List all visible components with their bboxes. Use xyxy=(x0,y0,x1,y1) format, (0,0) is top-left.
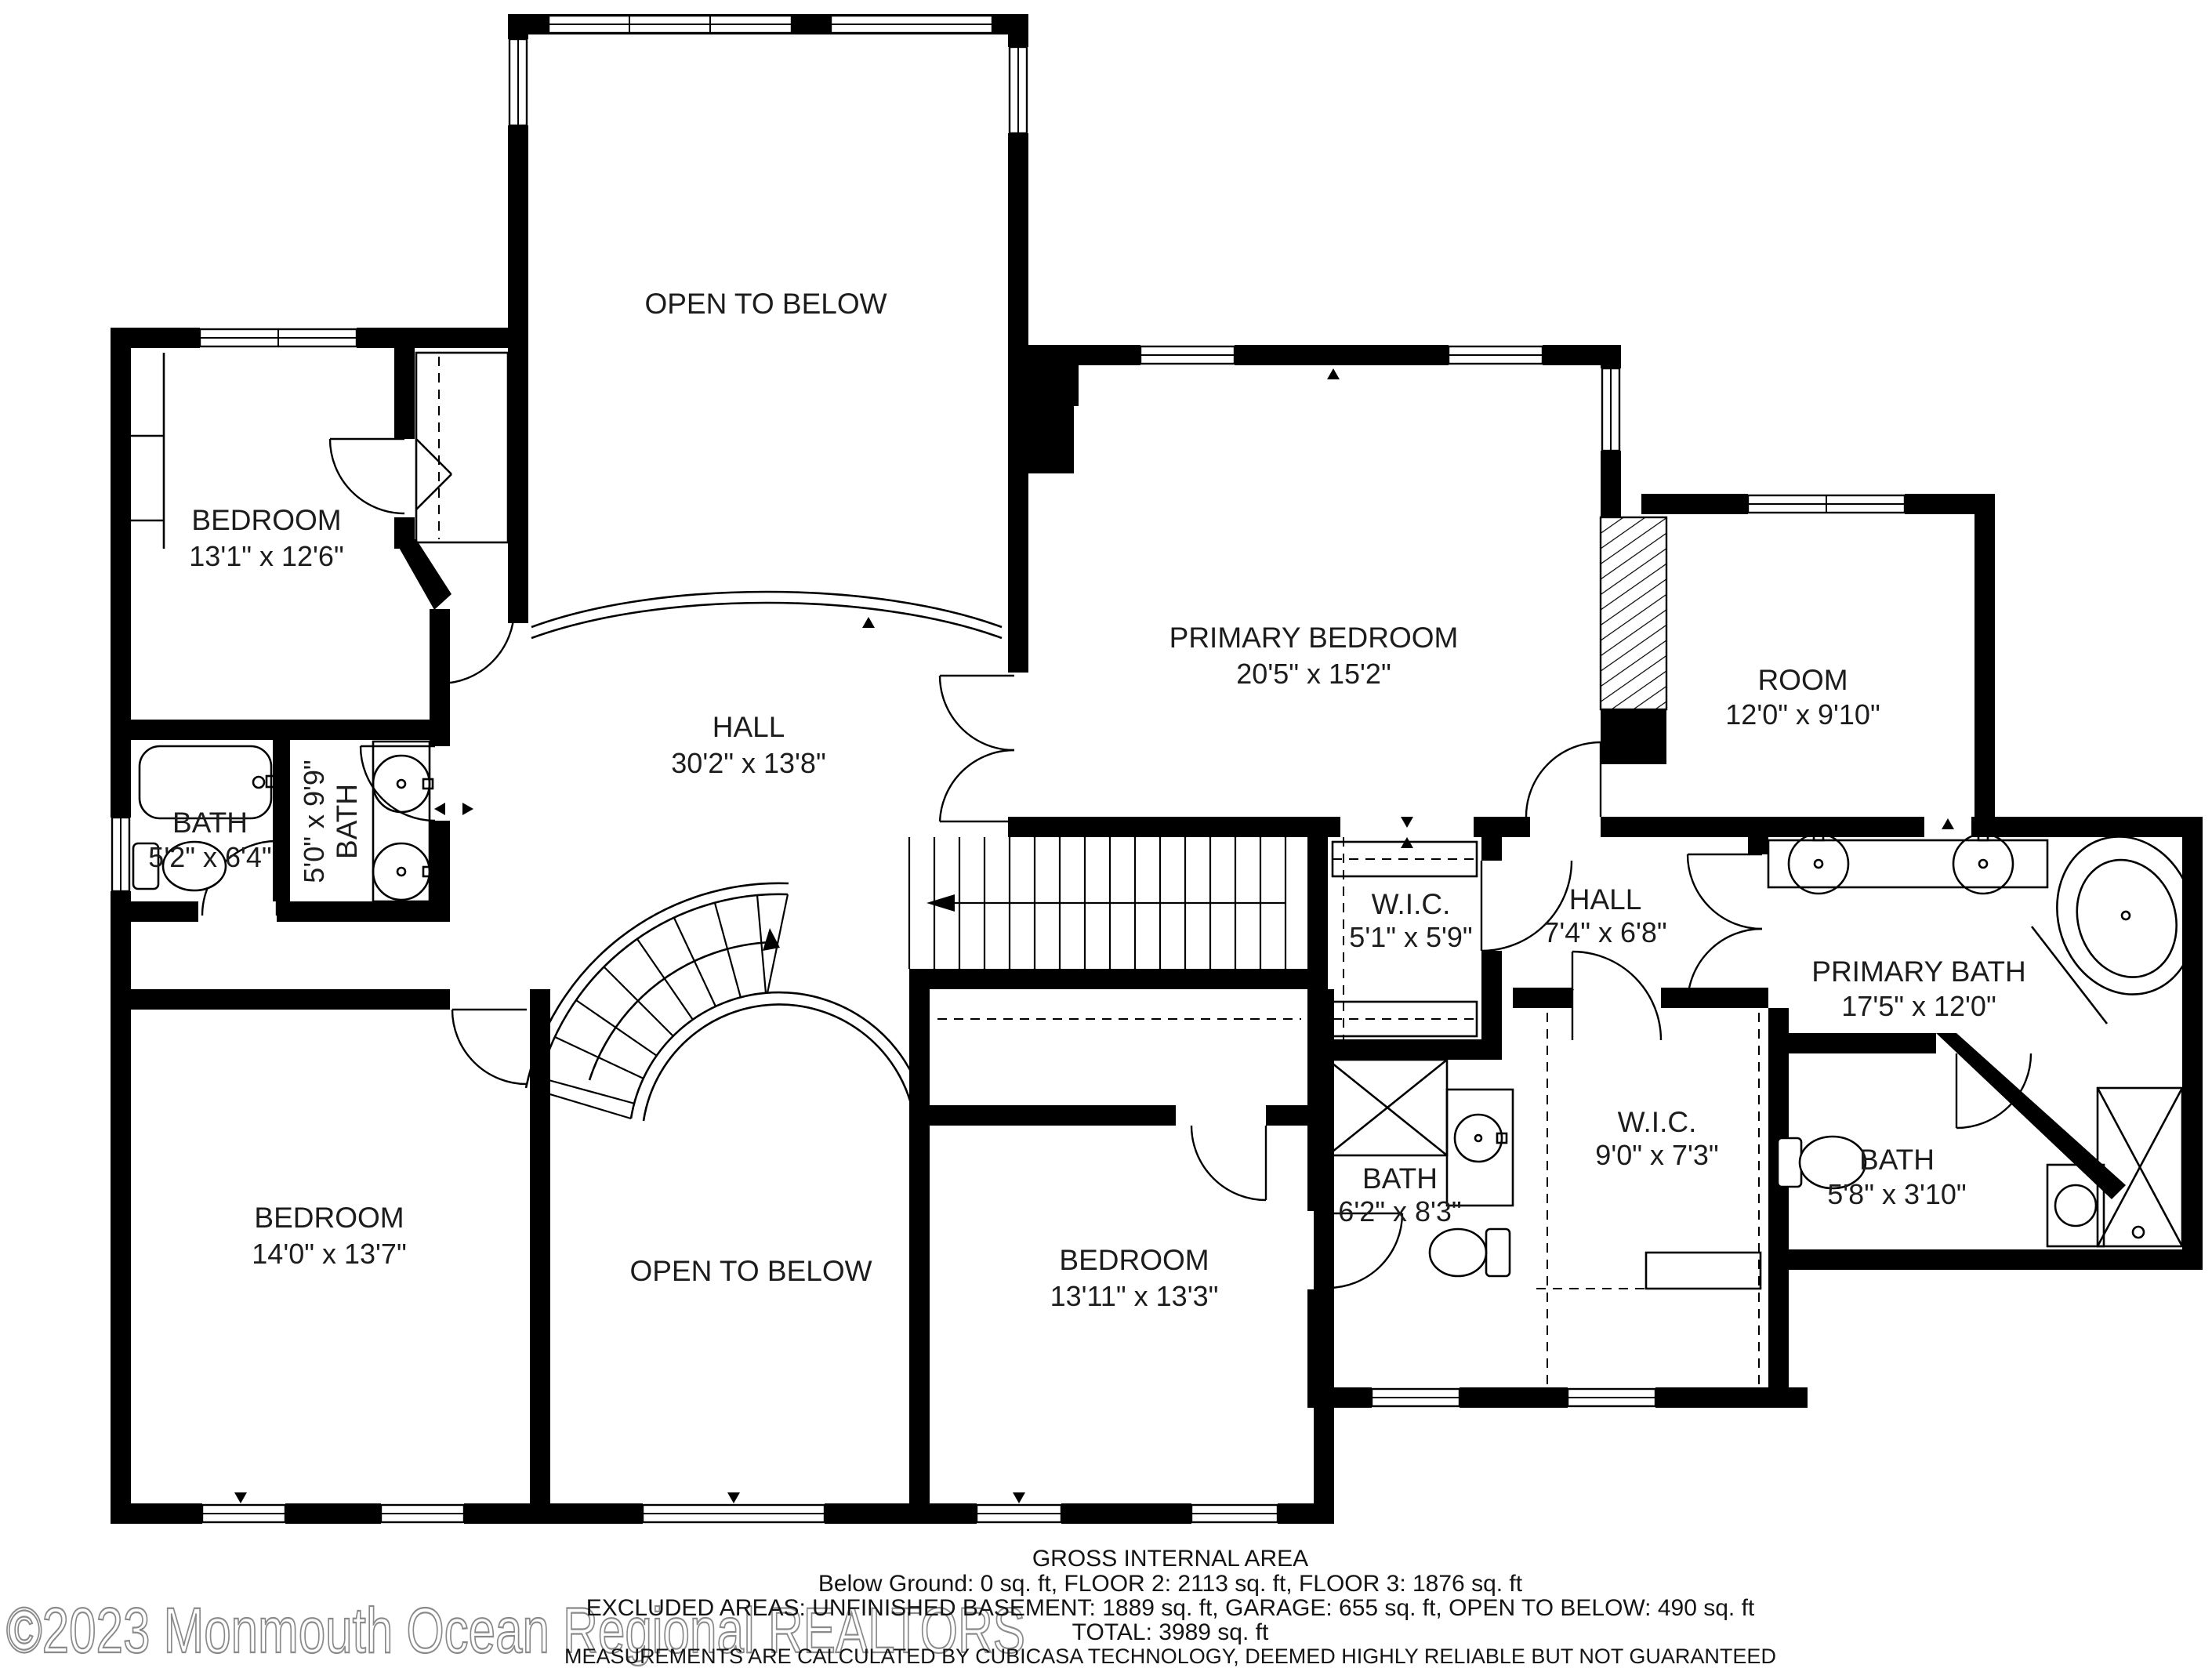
label-hall-name: HALL xyxy=(713,711,785,743)
footer-total: TOTAL: 3989 sq. ft xyxy=(1072,1619,1269,1645)
fireplace xyxy=(1028,406,1074,473)
window xyxy=(1372,1389,1460,1406)
window xyxy=(1748,495,1905,513)
window xyxy=(509,39,527,125)
window xyxy=(831,16,992,33)
label-hall-dims: 30'2" x 13'8" xyxy=(671,747,825,779)
window xyxy=(1449,346,1543,364)
window xyxy=(977,1505,1061,1522)
label-bath1-name: BATH xyxy=(172,807,248,839)
label-bath1-dims: 5'2" x 6'4" xyxy=(148,841,271,873)
window xyxy=(200,329,357,346)
toilet-bath-3 xyxy=(1430,1229,1510,1276)
label-bath2-name: BATH xyxy=(331,784,363,859)
label-open-below-top: OPEN TO BELOW xyxy=(644,288,887,320)
window xyxy=(549,16,792,33)
label-bath3-dims: 6'2" x 8'3" xyxy=(1338,1195,1461,1227)
floor-plan: OPEN TO BELOW BEDROOM 13'1" x 12'6" HALL… xyxy=(0,0,2212,1668)
footer-excluded: EXCLUDED AREAS: UNFINISHED BASEMENT: 188… xyxy=(586,1595,1755,1621)
label-bedroom-tl-name: BEDROOM xyxy=(191,504,341,536)
label-hall-small-name: HALL xyxy=(1569,883,1642,916)
label-bedroom-bm-name: BEDROOM xyxy=(1059,1244,1209,1276)
label-primary-bedroom-dims: 20'5" x 15'2" xyxy=(1236,658,1391,690)
window xyxy=(643,1505,825,1522)
label-bath4-name: BATH xyxy=(1859,1144,1935,1176)
window xyxy=(1010,47,1027,133)
label-bedroom-bm-dims: 13'11" x 13'3" xyxy=(1050,1280,1219,1312)
footer-disclaimer: MEASUREMENTS ARE CALCULATED BY CUBICASA … xyxy=(564,1644,1776,1668)
label-room-dims: 12'0" x 9'10" xyxy=(1725,698,1880,731)
label-hall-small-dims: 7'4" x 6'8" xyxy=(1543,916,1666,948)
label-bath4-dims: 5'8" x 3'10" xyxy=(1827,1178,1966,1210)
footer-title: GROSS INTERNAL AREA xyxy=(1032,1546,1308,1572)
window xyxy=(202,1505,285,1522)
label-wic-small-name: W.I.C. xyxy=(1372,888,1451,920)
window xyxy=(1568,1389,1655,1406)
window xyxy=(112,818,129,891)
chimney-hatch xyxy=(1601,517,1666,709)
window xyxy=(381,1505,464,1522)
label-open-below-bottom: OPEN TO BELOW xyxy=(629,1255,872,1287)
label-wic-large-dims: 9'0" x 7'3" xyxy=(1595,1139,1718,1171)
label-bath3-name: BATH xyxy=(1362,1162,1438,1195)
label-primary-bath-name: PRIMARY BATH xyxy=(1811,955,2025,988)
label-room-name: ROOM xyxy=(1757,664,1848,696)
label-wic-small-dims: 5'1" x 5'9" xyxy=(1349,921,1472,953)
label-primary-bedroom-name: PRIMARY BEDROOM xyxy=(1169,622,1459,654)
label-wic-large-name: W.I.C. xyxy=(1618,1106,1697,1138)
label-bath2-dims: 5'0" x 9'9" xyxy=(298,760,330,883)
label-bedroom-bl-name: BEDROOM xyxy=(254,1202,404,1234)
label-primary-bath-dims: 17'5" x 12'0" xyxy=(1841,990,1996,1022)
window xyxy=(1602,368,1619,451)
window xyxy=(1140,346,1235,364)
footer-areas: Below Ground: 0 sq. ft, FLOOR 2: 2113 sq… xyxy=(818,1571,1523,1597)
label-bedroom-bl-dims: 14'0" x 13'7" xyxy=(252,1238,406,1270)
label-bedroom-tl-dims: 13'1" x 12'6" xyxy=(189,540,343,572)
window xyxy=(1191,1505,1278,1522)
